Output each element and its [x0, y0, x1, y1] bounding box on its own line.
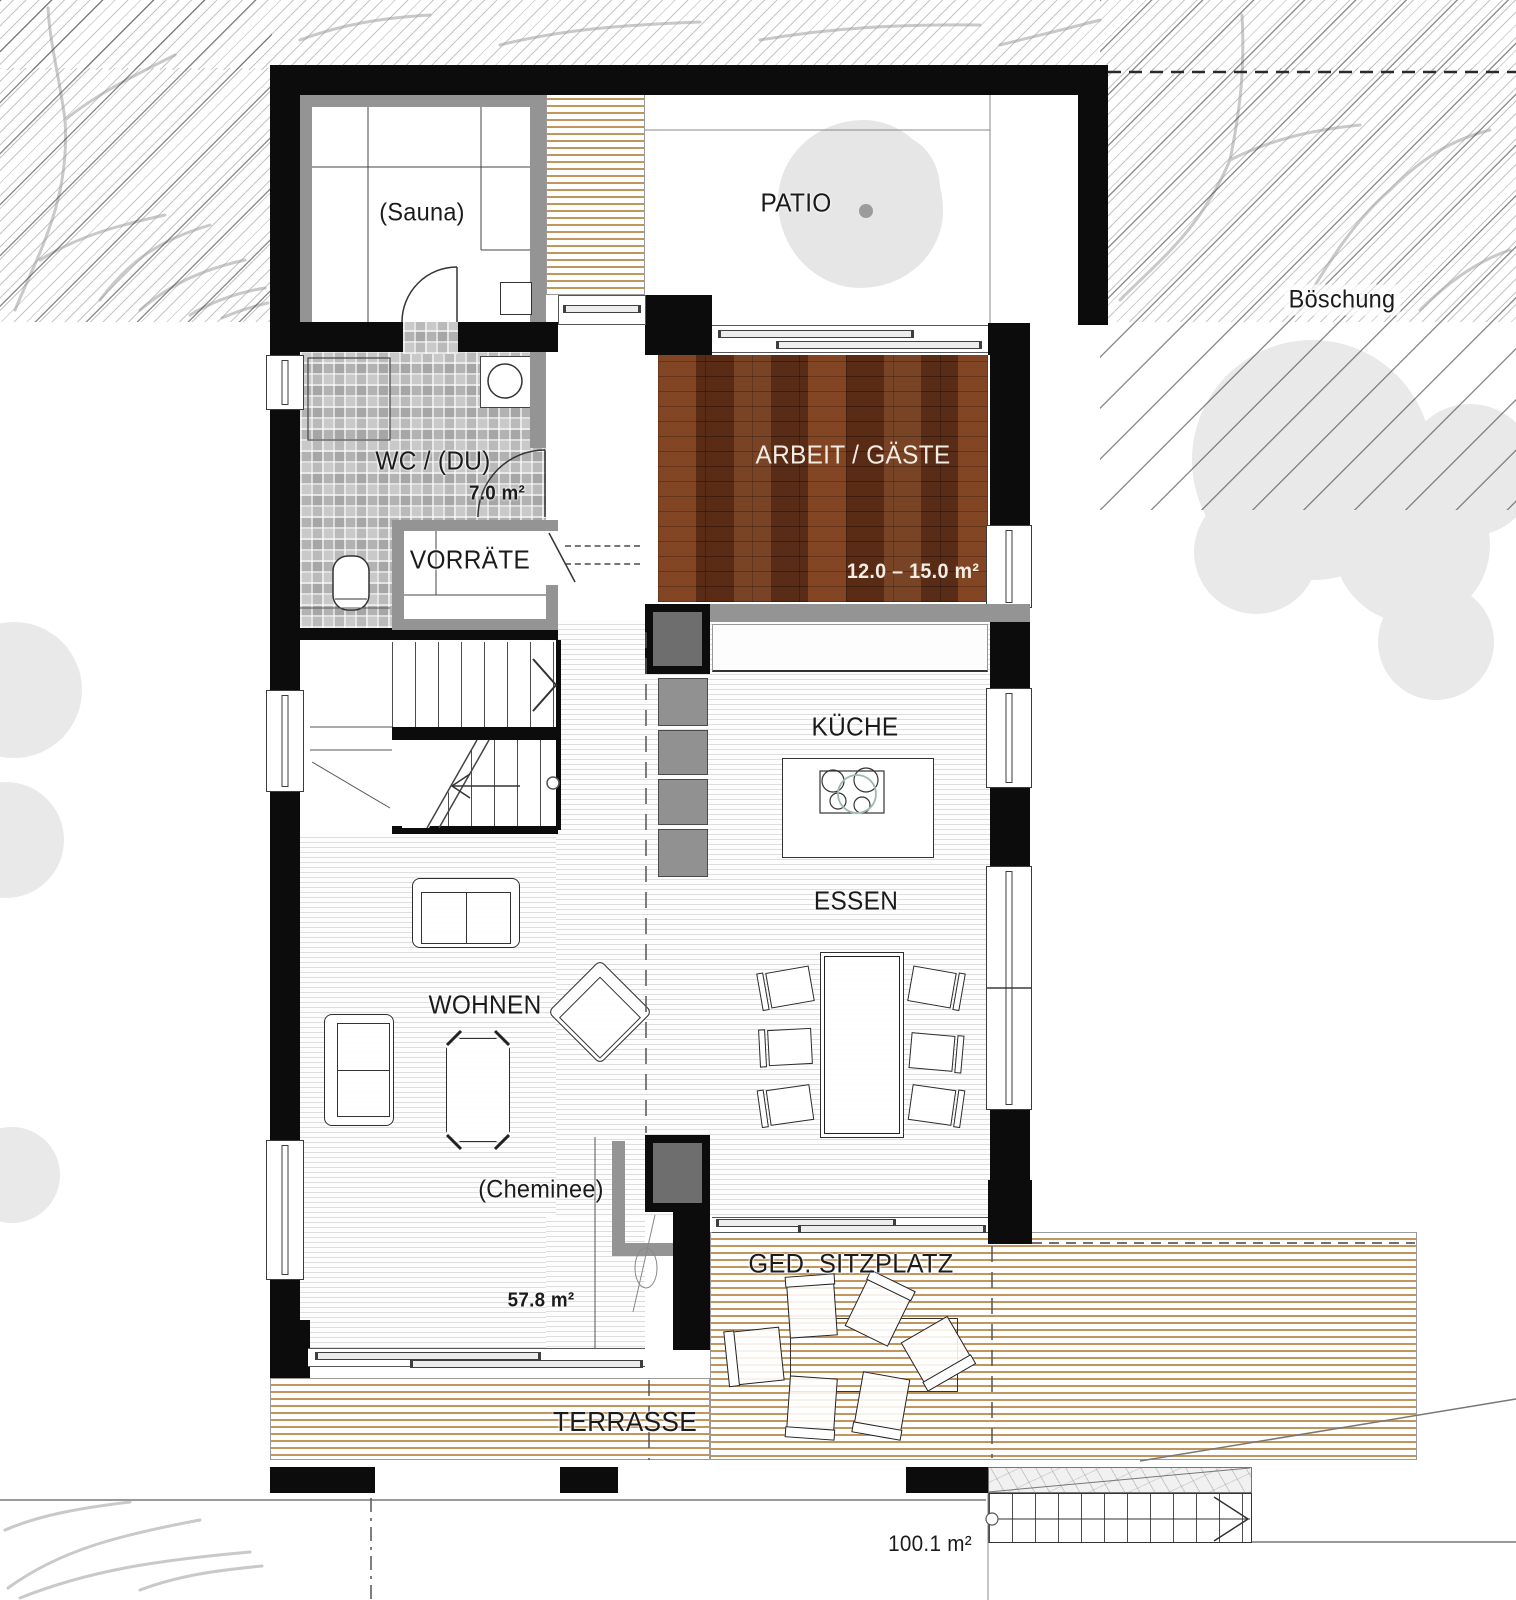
dining-chair: [767, 1028, 813, 1066]
window-west-stair: [266, 690, 304, 792]
room-label-vorraete: VORRÄTE: [410, 545, 530, 576]
wall-fireplace-column: [673, 1212, 710, 1350]
site-label-boeschung: Böschung: [1284, 285, 1400, 316]
vorraete-wall-e: [546, 585, 558, 630]
stair-mid-wall: [392, 727, 558, 740]
wall-west-2: [270, 410, 300, 690]
wall-east-4: [990, 1110, 1030, 1180]
slope-hatch-dark-right: [1100, 0, 1516, 510]
kitchen-cabinet-2: [658, 730, 708, 775]
area-label-wc: 7.0 m²: [469, 483, 525, 506]
stair-landing: [310, 642, 392, 827]
room-label-essen: ESSEN: [814, 886, 898, 917]
sofa-seat-divider: [466, 892, 467, 944]
outdoor-chair: [731, 1327, 784, 1386]
wall-arbeit-kueche: [710, 604, 1030, 622]
patio-sliding-door-2: [776, 341, 982, 349]
window-glass: [282, 1145, 289, 1275]
room-label-kueche: KÜCHE: [812, 712, 899, 743]
sauna-lining-west: [300, 95, 312, 322]
site-area-label: 100.1 m²: [888, 1531, 972, 1557]
fireplace-surround-west: [612, 1141, 625, 1255]
window-glass: [282, 695, 289, 787]
wall-east-3: [990, 788, 1030, 866]
window-east-kueche: [986, 688, 1032, 788]
wohnen-floor-east: [546, 1217, 645, 1348]
window-west-wc: [266, 355, 304, 410]
room-label-wc: WC / (DU): [375, 446, 490, 477]
wohnen-sliding-door-2: [410, 1360, 643, 1368]
room-label-wohnen: WOHNEN: [428, 990, 541, 1021]
kueche-essen-floor: [546, 620, 990, 1217]
vorraete-wall-w: [392, 520, 404, 630]
window-west-wohnen: [266, 1140, 304, 1280]
sofa-seat-divider: [337, 1070, 390, 1071]
dining-chair: [907, 965, 957, 1008]
window-glass: [282, 360, 289, 405]
essen-south-glazing: [712, 1217, 988, 1233]
kitchen-cabinet-4: [658, 829, 708, 877]
hall-dashed-line-2: [565, 563, 640, 565]
wall-east-corner: [988, 1180, 1032, 1244]
window-glass: [1006, 530, 1013, 603]
wall-patio-east: [1078, 95, 1108, 325]
patio-tree-crown-lobe: [845, 135, 940, 235]
room-label-arbeit-gaeste: ARBEIT / GÄSTE: [755, 440, 950, 471]
area-label-wohnen: 57.8 m²: [508, 1290, 575, 1313]
flue-shaft-north: [653, 612, 702, 666]
entry-sliding-door: [563, 305, 641, 313]
deck-edge-wall-2: [560, 1467, 618, 1493]
exterior-stair: [988, 1493, 1252, 1543]
dining-chair: [766, 1084, 815, 1126]
gravel-strip: [988, 1467, 1252, 1493]
entry-boardwalk-deck: [546, 92, 645, 295]
wohnen-south-glazing: [308, 1348, 645, 1367]
hall-floor: [546, 295, 645, 620]
window-glass: [1006, 693, 1013, 783]
room-label-cheminee: (Cheminee): [478, 1176, 604, 1205]
patio-sliding-door-1: [718, 330, 914, 338]
sauna-lining-east: [530, 95, 546, 322]
stair-flight-up: [392, 642, 556, 727]
kitchen-cabinet-1: [658, 678, 708, 726]
hall-dashed-line-1: [565, 545, 640, 547]
wohnen-sliding-door-1: [315, 1352, 541, 1360]
vorraete-wall-s: [392, 619, 558, 630]
wall-sauna-south-1: [270, 322, 403, 352]
dining-table-top: [824, 956, 900, 1134]
stair-flight-down: [402, 740, 556, 826]
wall-west-1: [270, 95, 300, 355]
kitchen-island: [782, 758, 934, 858]
wall-south-west-stub: [270, 1320, 310, 1378]
kitchen-cabinet-3: [658, 779, 708, 825]
window-east-arbeit: [986, 525, 1032, 608]
sauna-lining-north: [300, 95, 530, 107]
dining-chair: [765, 965, 815, 1008]
window-east-essen: [986, 866, 1032, 1110]
outdoor-chair: [786, 1281, 838, 1338]
dining-chair: [908, 1084, 957, 1126]
vorraete-wall-n: [392, 520, 558, 531]
dining-chair: [909, 1032, 956, 1072]
slope-hatch-dark-left: [0, 0, 272, 322]
patio-south-glazing: [712, 325, 988, 353]
area-label-arbeit-gaeste: 12.0 – 15.0 m²: [847, 560, 979, 584]
outdoor-chair: [854, 1371, 911, 1433]
wall-patio-south-east: [988, 323, 1030, 355]
wall-wc-east: [530, 352, 546, 448]
fireplace-flue: [653, 1143, 702, 1203]
sauna-heater: [500, 282, 532, 315]
wall-west-3: [270, 790, 300, 1140]
wall-east-1: [990, 355, 1030, 525]
room-label-ged-sitzplatz: GED. SITZPLATZ: [748, 1249, 953, 1280]
wall-sauna-south-2: [458, 322, 558, 352]
deck-edge-wall-3: [906, 1467, 988, 1493]
window-glass: [1006, 871, 1013, 1105]
room-label-patio: PATIO: [760, 188, 831, 219]
sofa-two-seater: [412, 878, 520, 948]
washbasin-counter: [480, 356, 532, 408]
wall-north: [270, 65, 1108, 95]
wall-patio-south-west: [645, 295, 712, 355]
sofa-side: [324, 1014, 394, 1126]
deck-edge-wall-1: [270, 1467, 375, 1493]
room-label-terrasse: TERRASSE: [553, 1406, 697, 1438]
dining-table: [820, 952, 904, 1138]
entry-door-opening: [558, 295, 646, 325]
wc-door-passage-tiles: [403, 322, 458, 354]
stair-south-wall: [392, 826, 558, 834]
kitchen-counter: [712, 624, 988, 672]
room-label-sauna: (Sauna): [379, 199, 465, 228]
essen-sliding-door-2: [798, 1225, 986, 1233]
floor-plan-canvas: (Sauna) PATIO Böschung WC / (DU) 7.0 m² …: [0, 0, 1516, 1600]
outdoor-chair: [786, 1375, 838, 1432]
coffee-table: [446, 1038, 510, 1142]
